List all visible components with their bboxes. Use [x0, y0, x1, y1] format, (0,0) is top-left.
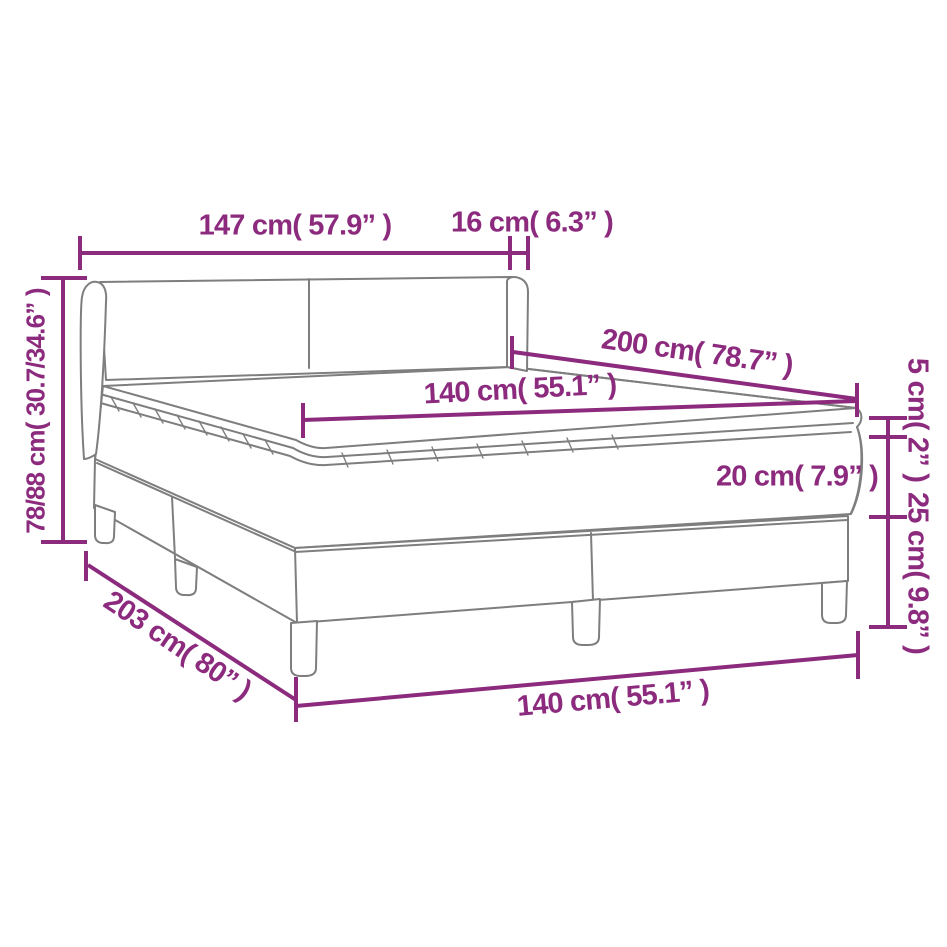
- mattress-height-label: 20 cm( 7.9” ): [716, 461, 878, 494]
- headboard-height-label: 78/88 cm( 30.7/34.6” ): [21, 288, 52, 533]
- mattress-topper-height-label: 5 cm( 2” ): [901, 358, 934, 482]
- leg: [291, 621, 317, 676]
- headboard-side-depth-label: 16 cm( 6.3” ): [451, 207, 613, 240]
- leg: [95, 505, 115, 543]
- headboard-width-label: 147 cm( 57.9” ): [199, 210, 392, 243]
- base-height-label: 25 cm( 9.8” ): [901, 492, 934, 654]
- bed-dimension-diagram: 147 cm( 57.9” ) 16 cm( 6.3” ) 78/88 cm( …: [0, 0, 947, 947]
- leg: [572, 599, 600, 645]
- headboard-panel: [100, 277, 512, 380]
- leg: [822, 581, 847, 623]
